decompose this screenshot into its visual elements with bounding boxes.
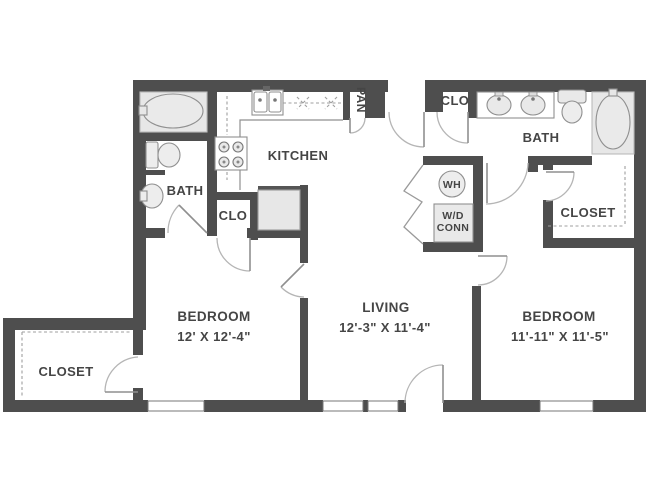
label-bedroom-2-dims: 11'-11" X 11'-5" [511, 329, 609, 344]
kitchen-sink-basin [254, 92, 267, 112]
bath2-tub-faucet [609, 89, 617, 96]
bottom-wall-seg [3, 400, 148, 412]
kitchen-sink-basin [269, 92, 281, 112]
bedroom2-top-wall [543, 238, 634, 248]
bath1-divider [133, 170, 165, 175]
label-clo-2: CLO [441, 93, 470, 108]
label-water-heater: WH [443, 179, 461, 191]
living-window-right [368, 401, 398, 411]
bath2-toilet-bowl [562, 101, 582, 123]
label-living: LIVING [362, 300, 409, 315]
closet2-left-wall-upper [543, 156, 553, 170]
label-bath-1: BATH [167, 183, 204, 198]
bath2-bathtub [596, 95, 630, 149]
bedroom1-window [148, 401, 204, 411]
label-bedroom-2: BEDROOM [522, 309, 595, 324]
label-clo-1: CLO [219, 208, 248, 223]
utility-right-wall [473, 156, 483, 252]
closet-ext-top-wall [3, 318, 133, 330]
bath2-sink-faucet [529, 92, 537, 96]
label-bedroom-1-dims: 12' X 12'-4" [177, 329, 251, 344]
closet-ext-left-wall [3, 330, 15, 400]
kitchen-sink-faucet [263, 86, 270, 91]
floor-plan-canvas: KITCHENBATHCLOPANCLOBATHWHW/DCONNCLOSETB… [0, 0, 650, 490]
living-window-left [323, 401, 363, 411]
floor-plan: KITCHENBATHCLOPANCLOBATHWHW/DCONNCLOSETB… [0, 0, 650, 490]
label-bath-2: BATH [523, 130, 560, 145]
right-wall [634, 92, 646, 412]
kitchen-sink-drain [273, 98, 277, 102]
bedroom1-living-wall-upper [300, 185, 308, 263]
bottom-wall-seg [593, 400, 646, 412]
bath1-toilet-tank [146, 142, 158, 168]
label-wd-conn: CONN [437, 222, 470, 234]
bedroom2-living-wall [472, 286, 481, 400]
bath2-sink-faucet [495, 92, 503, 96]
label-kitchen: KITCHEN [268, 148, 329, 163]
bath1-tub-wall [133, 132, 207, 141]
pantry-left-wall [343, 92, 350, 120]
bath1-sink-base [140, 191, 147, 201]
stove-burner-dot [237, 161, 240, 164]
kitchen-sink-drain [258, 98, 262, 102]
label-closet-ext: CLOSET [38, 364, 93, 379]
refrigerator [258, 190, 300, 230]
bath2-sink-drain [497, 97, 501, 101]
stove-burner-dot [223, 146, 226, 149]
bath2-sink-drain [531, 97, 535, 101]
closet-ext-jamb [133, 328, 143, 355]
bath1-toilet-bowl [158, 143, 180, 167]
bottom-wall-seg [443, 400, 540, 412]
window-mullion [363, 400, 368, 412]
utility-bottom-wall [423, 242, 483, 252]
stove-burner-dot [237, 146, 240, 149]
bottom-wall-seg [204, 400, 323, 412]
bath1-tub-faucet [139, 106, 147, 115]
label-bedroom-1: BEDROOM [177, 309, 250, 324]
clo1-top-wall [207, 192, 258, 200]
closet-ext-jamb [133, 388, 143, 400]
bath1-front-wall [133, 228, 165, 238]
bedroom2-window [540, 401, 593, 411]
bedroom1-living-wall-lower [300, 298, 308, 400]
label-wd: W/D [442, 210, 464, 222]
label-living-dims: 12'-3" X 11'-4" [339, 320, 431, 335]
bath1-bathtub [143, 94, 203, 128]
fridge-top-edge [258, 186, 300, 190]
bath2-door-pillar [528, 156, 538, 172]
label-closet-2: CLOSET [560, 205, 615, 220]
stove-burner-dot [223, 161, 226, 164]
label-pantry: PAN [354, 87, 368, 113]
